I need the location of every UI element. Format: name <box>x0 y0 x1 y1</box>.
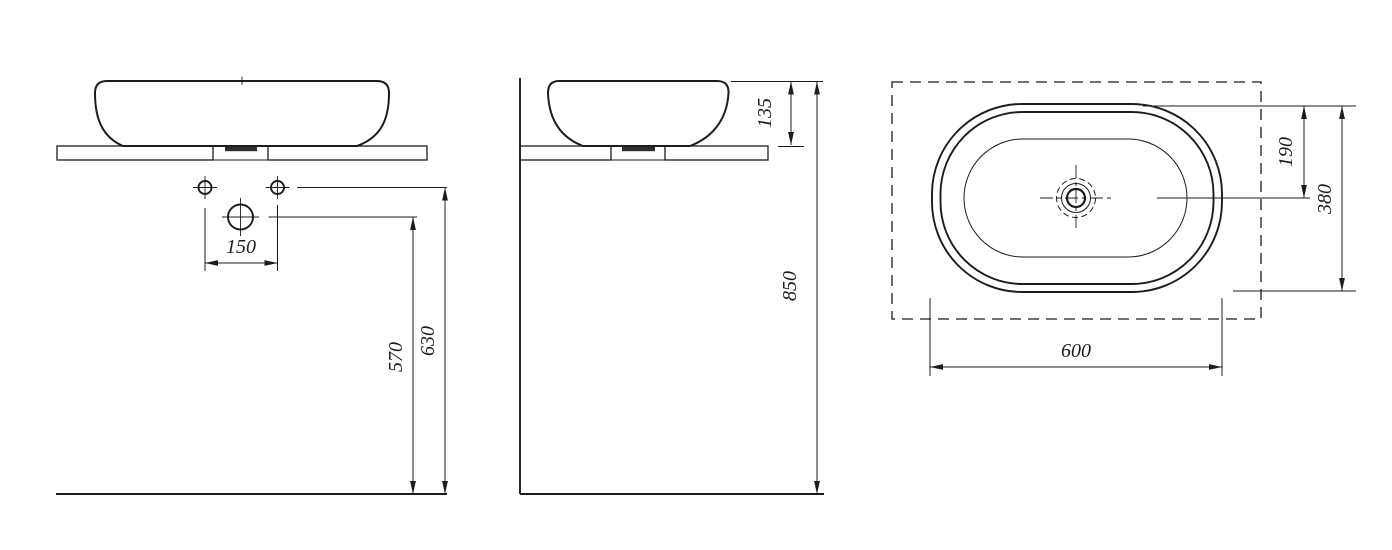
tap-hole-right <box>266 176 290 199</box>
dim-135-basin-height: 135 <box>754 82 804 147</box>
washbasin-drawing: 150 630 570 135 <box>0 0 1392 550</box>
tap-hole-left <box>193 176 217 199</box>
basin-front-outline <box>95 81 389 146</box>
dim-600-label: 600 <box>1061 340 1091 362</box>
drain-top <box>1040 165 1112 231</box>
dim-380-label: 380 <box>1314 184 1336 215</box>
countertop-front <box>57 146 427 160</box>
side-view: 135 850 <box>520 78 824 494</box>
dim-570-label: 570 <box>385 342 407 372</box>
front-view: 150 630 570 <box>56 77 447 495</box>
technical-drawing-canvas: 150 630 570 135 <box>0 0 1392 550</box>
dim-630-tap-holes-height: 630 <box>417 188 445 495</box>
dim-850-rim-height: 850 <box>779 82 817 495</box>
dim-190-drain-offset: 190 <box>1275 106 1304 198</box>
countertop-hatch-right <box>268 146 427 160</box>
dim-190-label: 190 <box>1275 137 1297 167</box>
drain-flange-side <box>622 147 655 151</box>
dim-135-label: 135 <box>754 98 776 128</box>
basin-side-outline <box>548 81 729 146</box>
countertop-hatch-left <box>57 146 213 160</box>
dim-570-drain-height: 570 <box>385 217 413 494</box>
drain-flange-front <box>225 147 257 151</box>
drain-outlet-front <box>222 198 259 236</box>
countertop-side <box>520 146 768 160</box>
top-view: 190 380 600 <box>892 82 1356 376</box>
dim-150-tap-hole-spacing: 150 <box>205 205 278 271</box>
dim-850-label: 850 <box>779 271 801 301</box>
countertop-hatch-right <box>665 146 768 160</box>
dim-600-basin-width: 600 <box>930 298 1222 376</box>
countertop-hatch-left <box>520 146 611 160</box>
dim-630-label: 630 <box>417 326 439 356</box>
dim-150-label: 150 <box>226 236 256 258</box>
dim-380-basin-depth: 380 <box>1314 106 1342 291</box>
